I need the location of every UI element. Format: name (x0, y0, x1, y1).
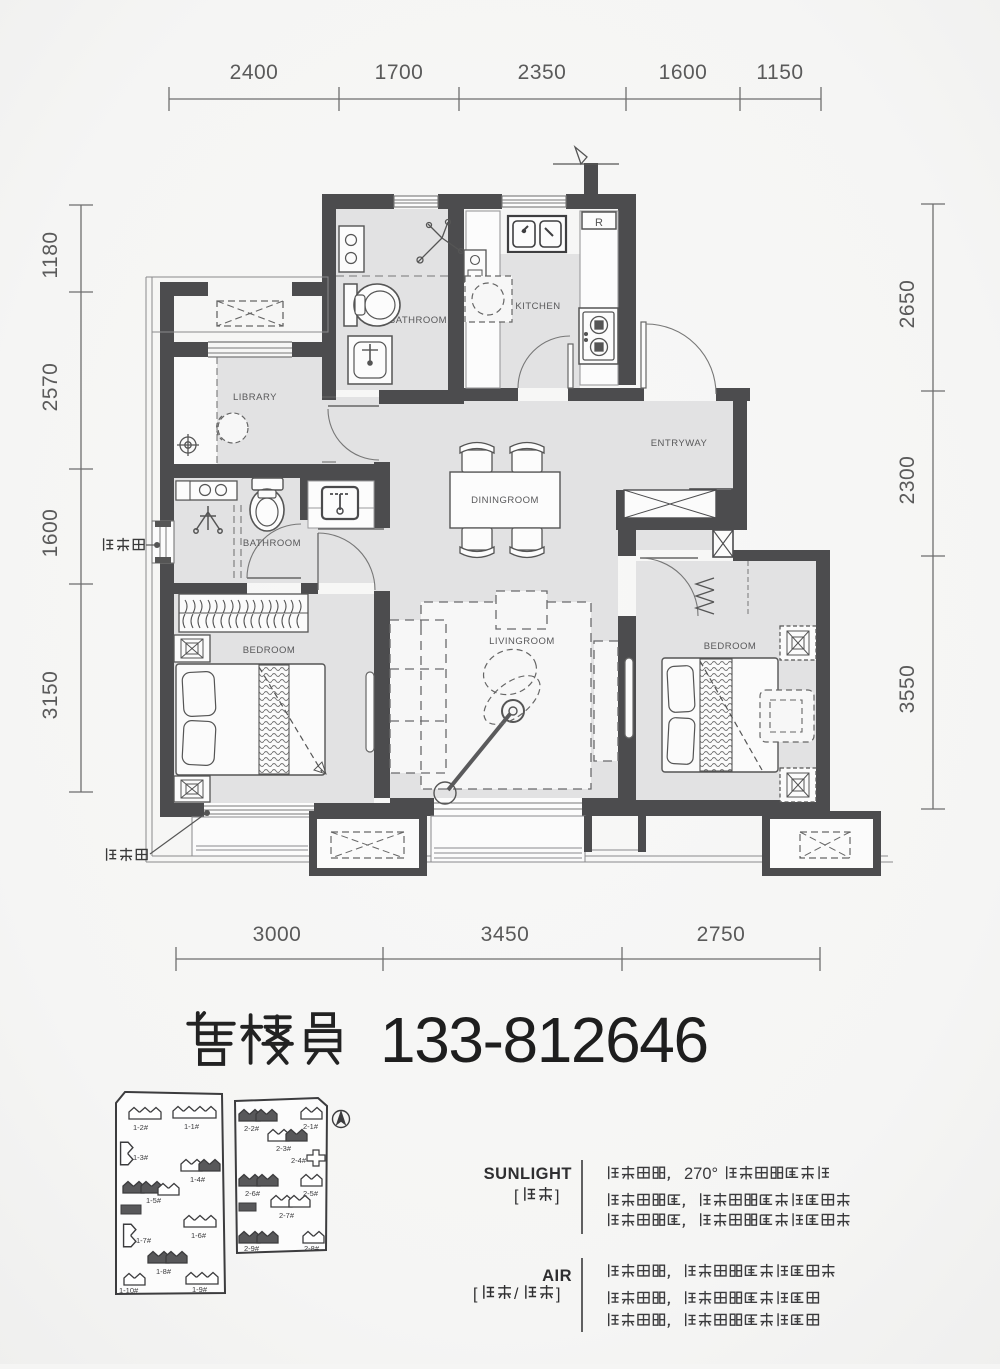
svg-text:1150: 1150 (756, 61, 803, 84)
svg-text:1-3#: 1-3# (133, 1153, 149, 1162)
svg-text:1-1#: 1-1# (184, 1122, 200, 1131)
svg-text:2-6#: 2-6# (245, 1189, 261, 1198)
svg-text:1-10#: 1-10# (119, 1286, 139, 1295)
svg-text:/: / (514, 1286, 519, 1303)
svg-text:2-3#: 2-3# (276, 1144, 292, 1153)
svg-text:]: ] (556, 1286, 560, 1303)
svg-text:R: R (595, 217, 603, 229)
svg-text:1700: 1700 (375, 61, 424, 84)
svg-text:BATHROOM: BATHROOM (243, 538, 301, 549)
svg-text:KITCHEN: KITCHEN (515, 301, 560, 312)
svg-text:1-5#: 1-5# (146, 1196, 162, 1205)
svg-text:2300: 2300 (896, 456, 919, 505)
svg-text:BATHROOM: BATHROOM (389, 315, 447, 326)
svg-text:2400: 2400 (230, 61, 279, 84)
svg-text:1-7#: 1-7# (136, 1236, 152, 1245)
svg-text:3450: 3450 (481, 923, 530, 946)
svg-text:1600: 1600 (659, 61, 708, 84)
svg-text:2650: 2650 (896, 280, 919, 329)
svg-text:]: ] (555, 1188, 559, 1205)
svg-text:DININGROOM: DININGROOM (471, 495, 539, 506)
svg-text:LIBRARY: LIBRARY (233, 392, 277, 403)
svg-text:1180: 1180 (39, 231, 62, 278)
svg-text:133-812646: 133-812646 (380, 1004, 708, 1076)
svg-text:2-7#: 2-7# (279, 1211, 295, 1220)
svg-text:[: [ (473, 1286, 478, 1303)
svg-text:3000: 3000 (253, 923, 302, 946)
svg-text:2350: 2350 (518, 61, 567, 84)
svg-text:[: [ (514, 1188, 519, 1205)
svg-text:SUNLIGHT: SUNLIGHT (484, 1165, 572, 1183)
svg-text:BEDROOM: BEDROOM (704, 641, 757, 652)
svg-text:AIR: AIR (542, 1267, 572, 1285)
svg-text:2-1#: 2-1# (303, 1122, 319, 1131)
svg-text:ENTRYWAY: ENTRYWAY (651, 438, 708, 449)
svg-text:2-8#: 2-8# (304, 1244, 320, 1253)
svg-text:3550: 3550 (896, 665, 919, 714)
svg-text:1-8#: 1-8# (156, 1267, 172, 1276)
svg-text:3150: 3150 (39, 671, 62, 720)
svg-text:270°: 270° (684, 1165, 718, 1183)
svg-text:1-4#: 1-4# (190, 1175, 206, 1184)
svg-text:2-9#: 2-9# (244, 1244, 260, 1253)
svg-text:2-4#: 2-4# (291, 1156, 307, 1165)
svg-text:1-2#: 1-2# (133, 1123, 149, 1132)
svg-text:2-2#: 2-2# (244, 1124, 260, 1133)
svg-text:1-6#: 1-6# (191, 1231, 207, 1240)
svg-text:2750: 2750 (697, 923, 746, 946)
svg-text:BEDROOM: BEDROOM (243, 645, 296, 656)
svg-text:1600: 1600 (39, 509, 62, 558)
svg-text:1-9#: 1-9# (192, 1285, 208, 1294)
svg-text:LIVINGROOM: LIVINGROOM (489, 636, 555, 647)
svg-text:2570: 2570 (39, 363, 62, 412)
